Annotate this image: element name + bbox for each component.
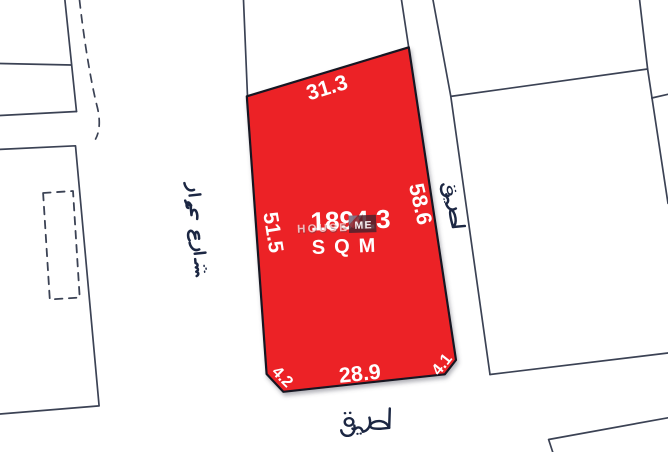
- svg-text:28.9: 28.9: [338, 360, 382, 388]
- svg-text:HOUSE: HOUSE: [297, 222, 349, 236]
- svg-text:ME: ME: [354, 219, 373, 232]
- svg-text:SQM: SQM: [311, 234, 384, 259]
